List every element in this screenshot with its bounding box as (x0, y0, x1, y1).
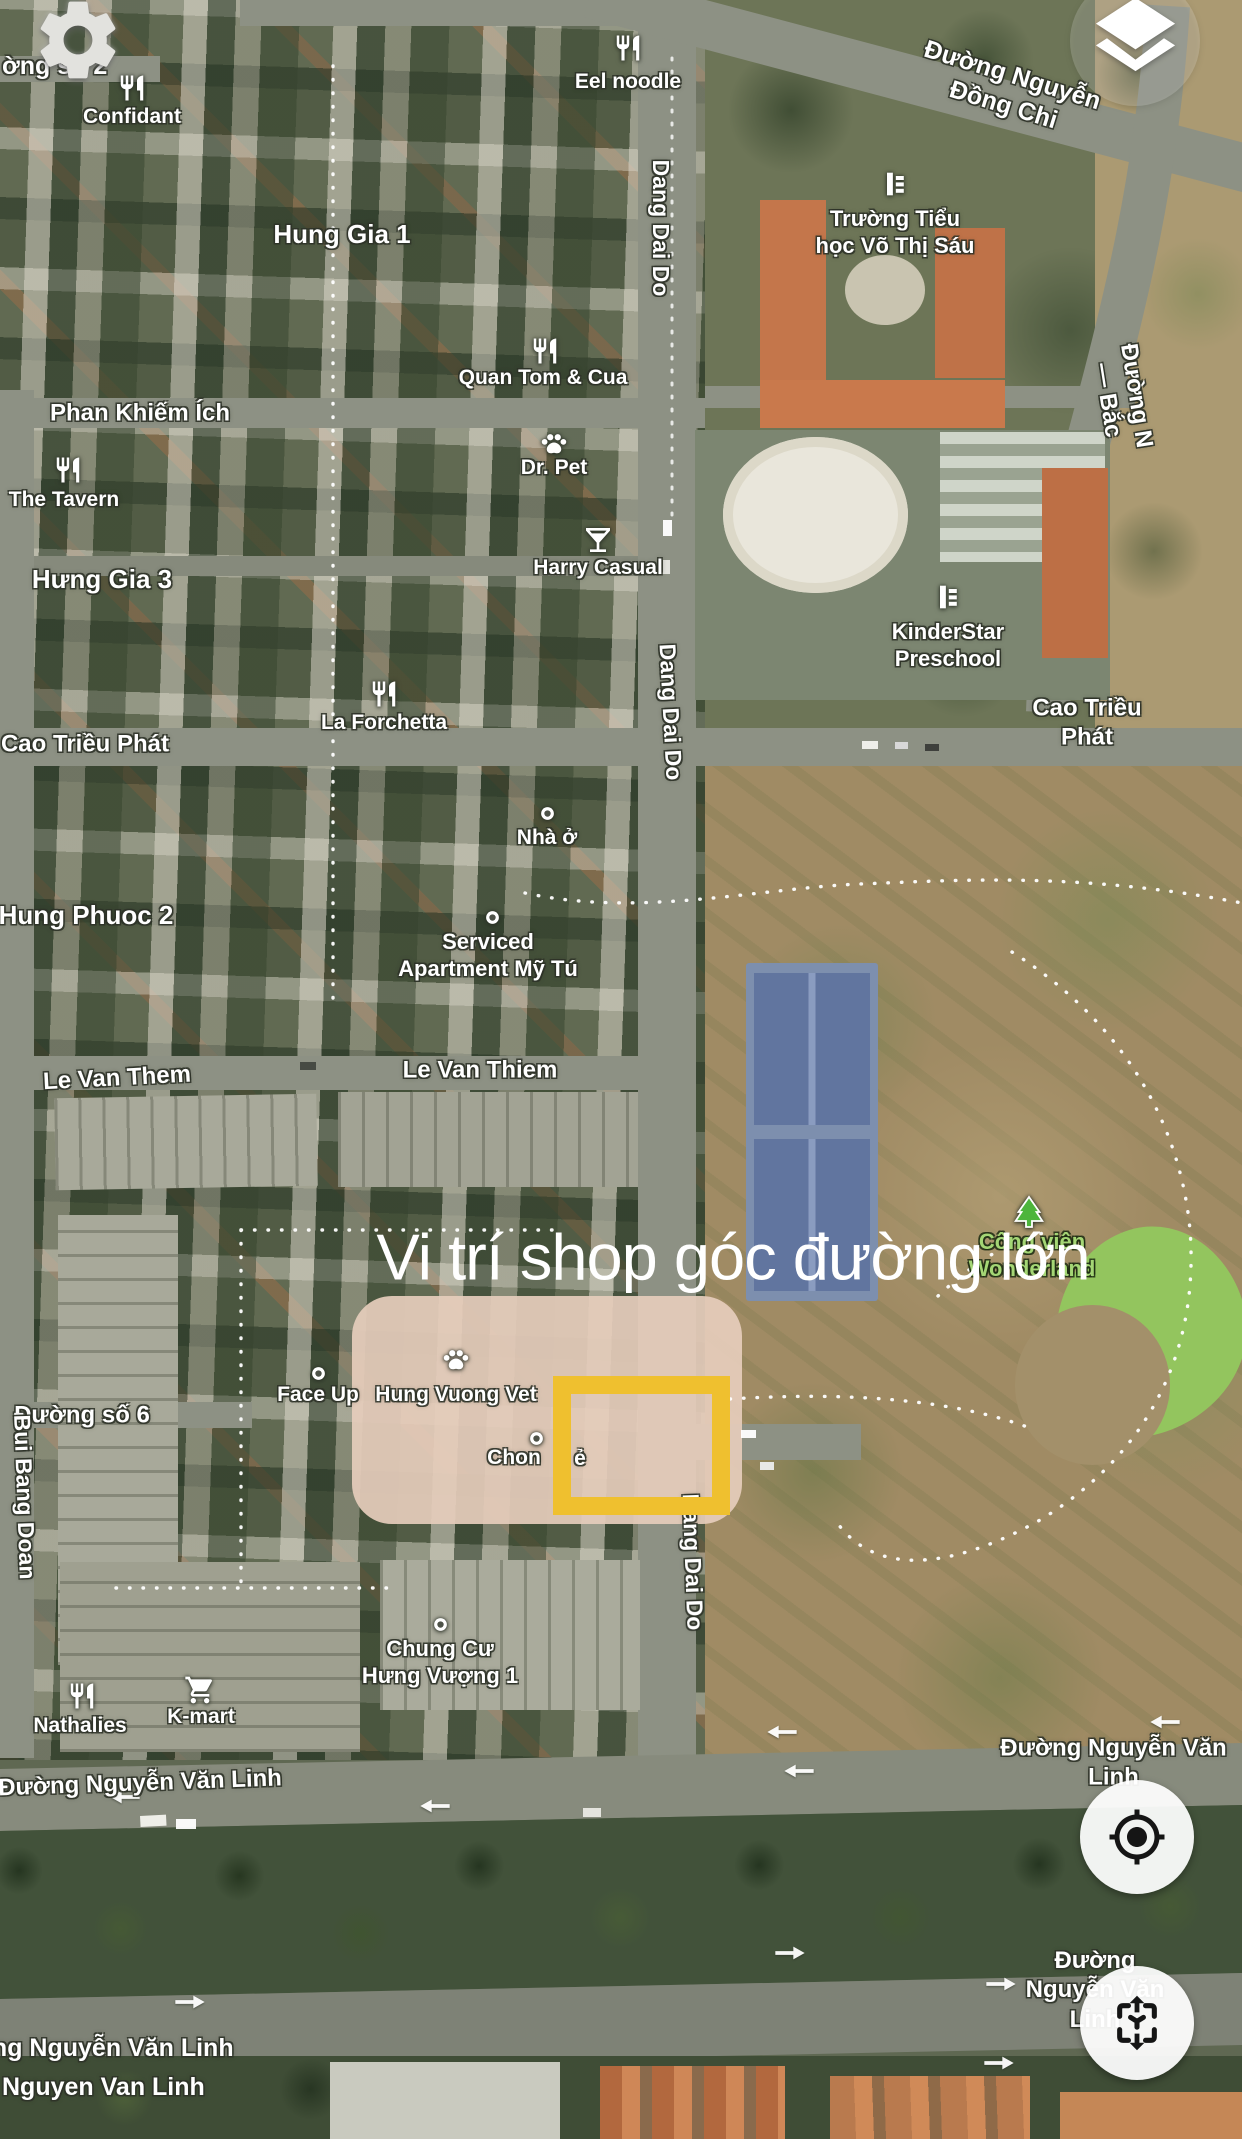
poi-dot-icon[interactable] (528, 1430, 545, 1447)
road-arrow-left (783, 1763, 815, 1779)
school-courtyard (845, 255, 925, 325)
road-arrow-left (1149, 1714, 1181, 1730)
road-arrow-right (983, 2055, 1015, 2071)
street-nguyen-van-linh-east: Đường Nguyễn Văn Linh (985, 1734, 1242, 1793)
poi-the-tavern[interactable]: The Tavern (9, 487, 119, 513)
street-dang-dai-do-top: Dang Dai Do (647, 160, 675, 297)
restaurant-icon[interactable] (67, 1681, 97, 1711)
kinderstar-wing (1042, 468, 1108, 658)
poi-serviced-apartment-my-tu[interactable]: Serviced Apartment Mỹ Tú (398, 929, 578, 983)
apartment-row (338, 1092, 638, 1187)
restaurant-icon[interactable] (369, 679, 399, 709)
poi-nathalies[interactable]: Nathalies (33, 1713, 126, 1739)
locate-icon (1107, 1807, 1167, 1867)
layers-icon (1088, 0, 1183, 85)
poi-dot-icon[interactable] (539, 805, 556, 822)
poi-kinderstar-preschool[interactable]: KinderStar Preschool (892, 619, 1004, 673)
road-arrow-left (419, 1798, 451, 1814)
pet-paw-icon[interactable] (539, 430, 569, 460)
street-nguyen-van-linh-southwest: Đường Nguyễn Văn Linh (0, 2033, 234, 2064)
spatial-view-button[interactable] (1080, 1966, 1194, 2080)
street-le-van-thiem: Le Van Thiem (403, 1055, 558, 1084)
poi-dot-icon[interactable] (432, 1616, 449, 1633)
poi-la-forchetta[interactable]: La Forchetta (321, 710, 447, 736)
poi-harry-casual[interactable]: Harry Casual (533, 555, 663, 581)
school-building (760, 380, 1005, 428)
restaurant-icon[interactable] (613, 33, 643, 63)
area-hung-gia-1: Hung Gia 1 (273, 219, 410, 251)
gear-icon (30, 0, 126, 88)
poi-hung-vuong-vet[interactable]: Hung Vuong Vet (375, 1382, 536, 1408)
layers-button[interactable] (1088, 0, 1183, 85)
bar-martini-icon[interactable] (582, 524, 614, 556)
poi-nha-o[interactable]: Nhà ở (517, 825, 577, 851)
poi-chung-cu-hung-vuong-1[interactable]: Chung Cư Hưng Vượng 1 (362, 1636, 518, 1690)
park-lawn-notch (1015, 1305, 1170, 1465)
my-location-button[interactable] (1080, 1780, 1194, 1894)
street-cao-trieu-phat-west: Cao Triều Phát (1, 729, 169, 758)
road-arrow-right (985, 1976, 1017, 1992)
poi-k-mart[interactable]: K-mart (167, 1704, 235, 1730)
poi-confidant[interactable]: Confidant (83, 104, 181, 130)
shopping-cart-icon[interactable] (184, 1674, 216, 1706)
poi-face-up[interactable]: Face Up (277, 1382, 359, 1408)
road-arrow-right (174, 1994, 206, 2010)
poi-eel-noodle[interactable]: Eel noodle (575, 69, 681, 95)
poi-truong-tieu-hoc-vo-thi-sau[interactable]: Trường Tiểu học Võ Thị Sáu (816, 206, 975, 260)
school-icon[interactable] (879, 168, 911, 200)
poi-dot-icon[interactable] (484, 909, 501, 926)
area-hung-phuoc-2: Hung Phuoc 2 (0, 900, 173, 932)
poi-chon[interactable]: Chon (487, 1445, 541, 1471)
map-canvas[interactable]: Vi trí shop góc đường lớn ờng số 2Đường … (0, 0, 1242, 2139)
restaurant-icon[interactable] (53, 455, 83, 485)
road-arrow-right (774, 1945, 806, 1961)
street-phan-khiem-ich: Phan Khiếm Ích (50, 398, 230, 427)
settings-button[interactable] (30, 0, 126, 88)
road-arrow-left (766, 1724, 798, 1740)
annotation-headline: Vi trí shop góc đường lớn (376, 1217, 1089, 1296)
road-top (240, 0, 640, 26)
apartment-row (54, 1094, 318, 1191)
kinderstar-dome (723, 437, 908, 593)
pet-paw-icon[interactable] (441, 1346, 471, 1376)
restaurant-icon[interactable] (530, 336, 560, 366)
street-cao-trieu-phat-east: Cao Triều Phát (1010, 694, 1165, 753)
street-bui-bang-doan: Bui Bang Doan (8, 1414, 42, 1580)
poi-dot-icon[interactable] (310, 1365, 327, 1382)
highlight-box (553, 1376, 730, 1515)
spatial-icon (1105, 1991, 1169, 2055)
poi-quan-tom-cua[interactable]: Quan Tom & Cua (459, 365, 628, 391)
street-nguyen-van-linh-plain: Nguyen Van Linh (2, 2072, 205, 2103)
school-icon[interactable] (932, 581, 964, 613)
area-hung-gia-3: Hưng Gia 3 (32, 564, 172, 596)
